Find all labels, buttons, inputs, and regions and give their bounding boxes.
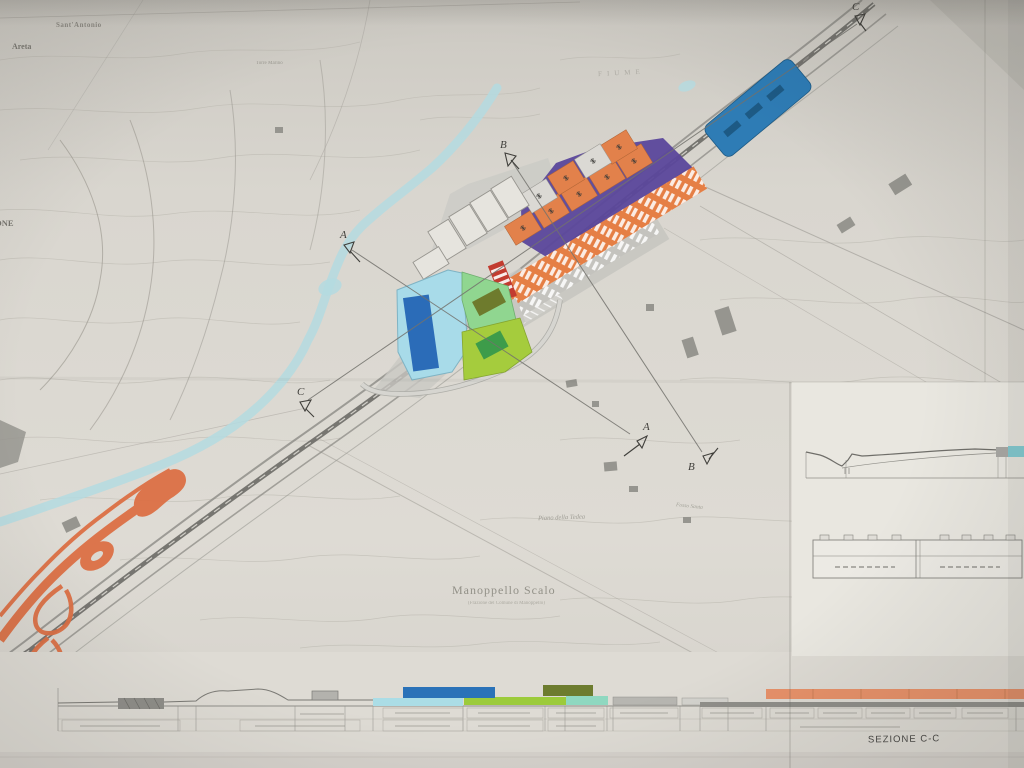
map-photo: Sant'Antonio Areta Torre Marino AZIONE F… [0,0,1024,768]
photo-effects [0,0,1024,768]
